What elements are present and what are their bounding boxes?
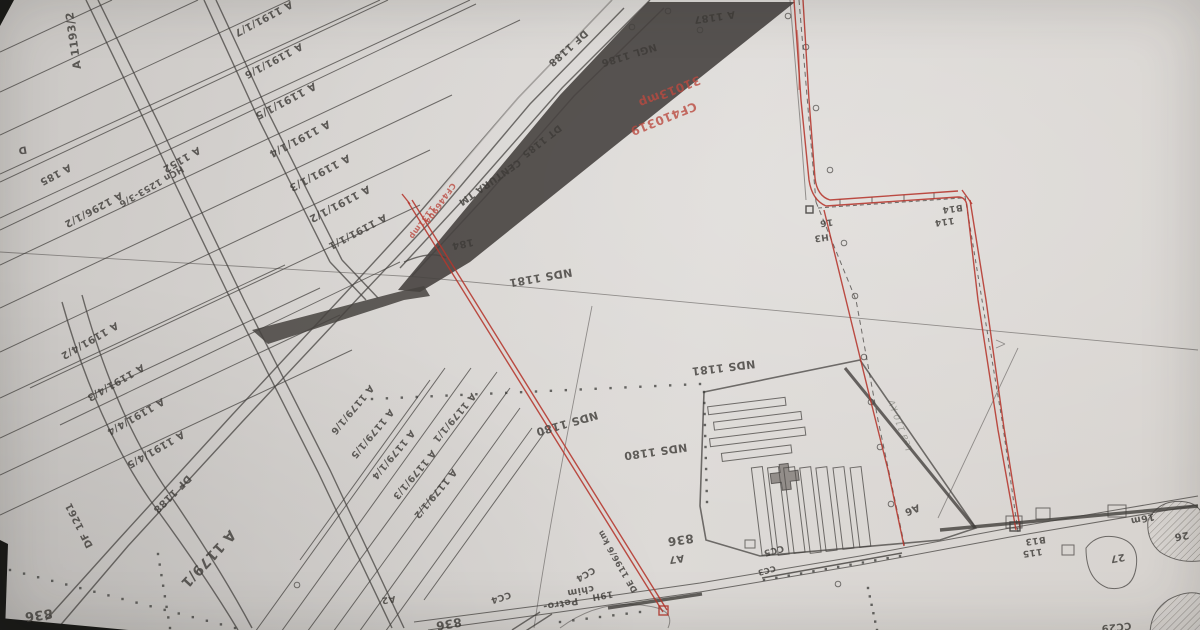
- map-label: 27: [1109, 551, 1125, 564]
- cadastral-map: A 1193/2A 1191/1/7A 1191/1/6A 1191/1/5A …: [0, 0, 1200, 630]
- map-label: B14: [941, 202, 963, 215]
- dashed-boundaries: [790, 0, 1018, 548]
- map-label: CC29: [1101, 619, 1132, 630]
- map-label: D: [17, 143, 27, 155]
- map-label: CC4: [574, 564, 597, 583]
- map-label: A 1179/1/1: [430, 391, 478, 445]
- map-label: 115: [1022, 546, 1043, 559]
- photo-edge: [0, 0, 150, 630]
- map-label: CC4: [489, 589, 512, 605]
- map-label: DF 1261: [64, 501, 96, 550]
- map-label: B13: [1024, 534, 1046, 547]
- map-label: A 1191/1/6: [242, 40, 304, 80]
- map-label: H3: [813, 231, 829, 243]
- map-label: NDS 1180: [623, 441, 688, 463]
- map-label: 836: [667, 531, 695, 549]
- map-label: CC3: [757, 564, 777, 577]
- map-label: A 185: [38, 161, 73, 187]
- map-label: DE 1196/6 km: [596, 528, 640, 594]
- map-label: A 1191/4/3: [85, 361, 146, 403]
- map-label: chim: [566, 583, 595, 599]
- map-label: A 1191/4/4: [105, 395, 166, 437]
- map-label: DF 1188: [546, 27, 590, 68]
- map-label: A7: [668, 552, 685, 565]
- map-label: 836: [435, 615, 463, 630]
- map-label: 836: [23, 605, 53, 624]
- map-label: NDS 1181: [508, 265, 573, 289]
- red-boundary-overlay: [402, 0, 1020, 615]
- factory-buildings: [706, 389, 871, 564]
- map-label: A 1191/4/2: [59, 319, 120, 361]
- map-label: A 1179/1/6: [328, 383, 376, 437]
- map-label: A 1191/1/1: [326, 211, 388, 251]
- map-label: A 1179/1: [177, 527, 238, 591]
- map-label: DF 1188: [150, 472, 193, 515]
- map-label: NDS 1181: [691, 357, 756, 378]
- map-label: A 1296/1/2: [62, 189, 124, 229]
- map-label: A2: [381, 593, 396, 605]
- map-label: A 1191/1/7: [232, 0, 294, 38]
- cadastral-map-photo: A 1193/2A 1191/1/7A 1191/1/6A 1191/1/5A …: [0, 0, 1200, 630]
- map-label: 16: [819, 216, 834, 228]
- map-label: 114: [934, 215, 955, 228]
- map-label: A6: [903, 501, 921, 517]
- factory-parcel: [700, 360, 1126, 564]
